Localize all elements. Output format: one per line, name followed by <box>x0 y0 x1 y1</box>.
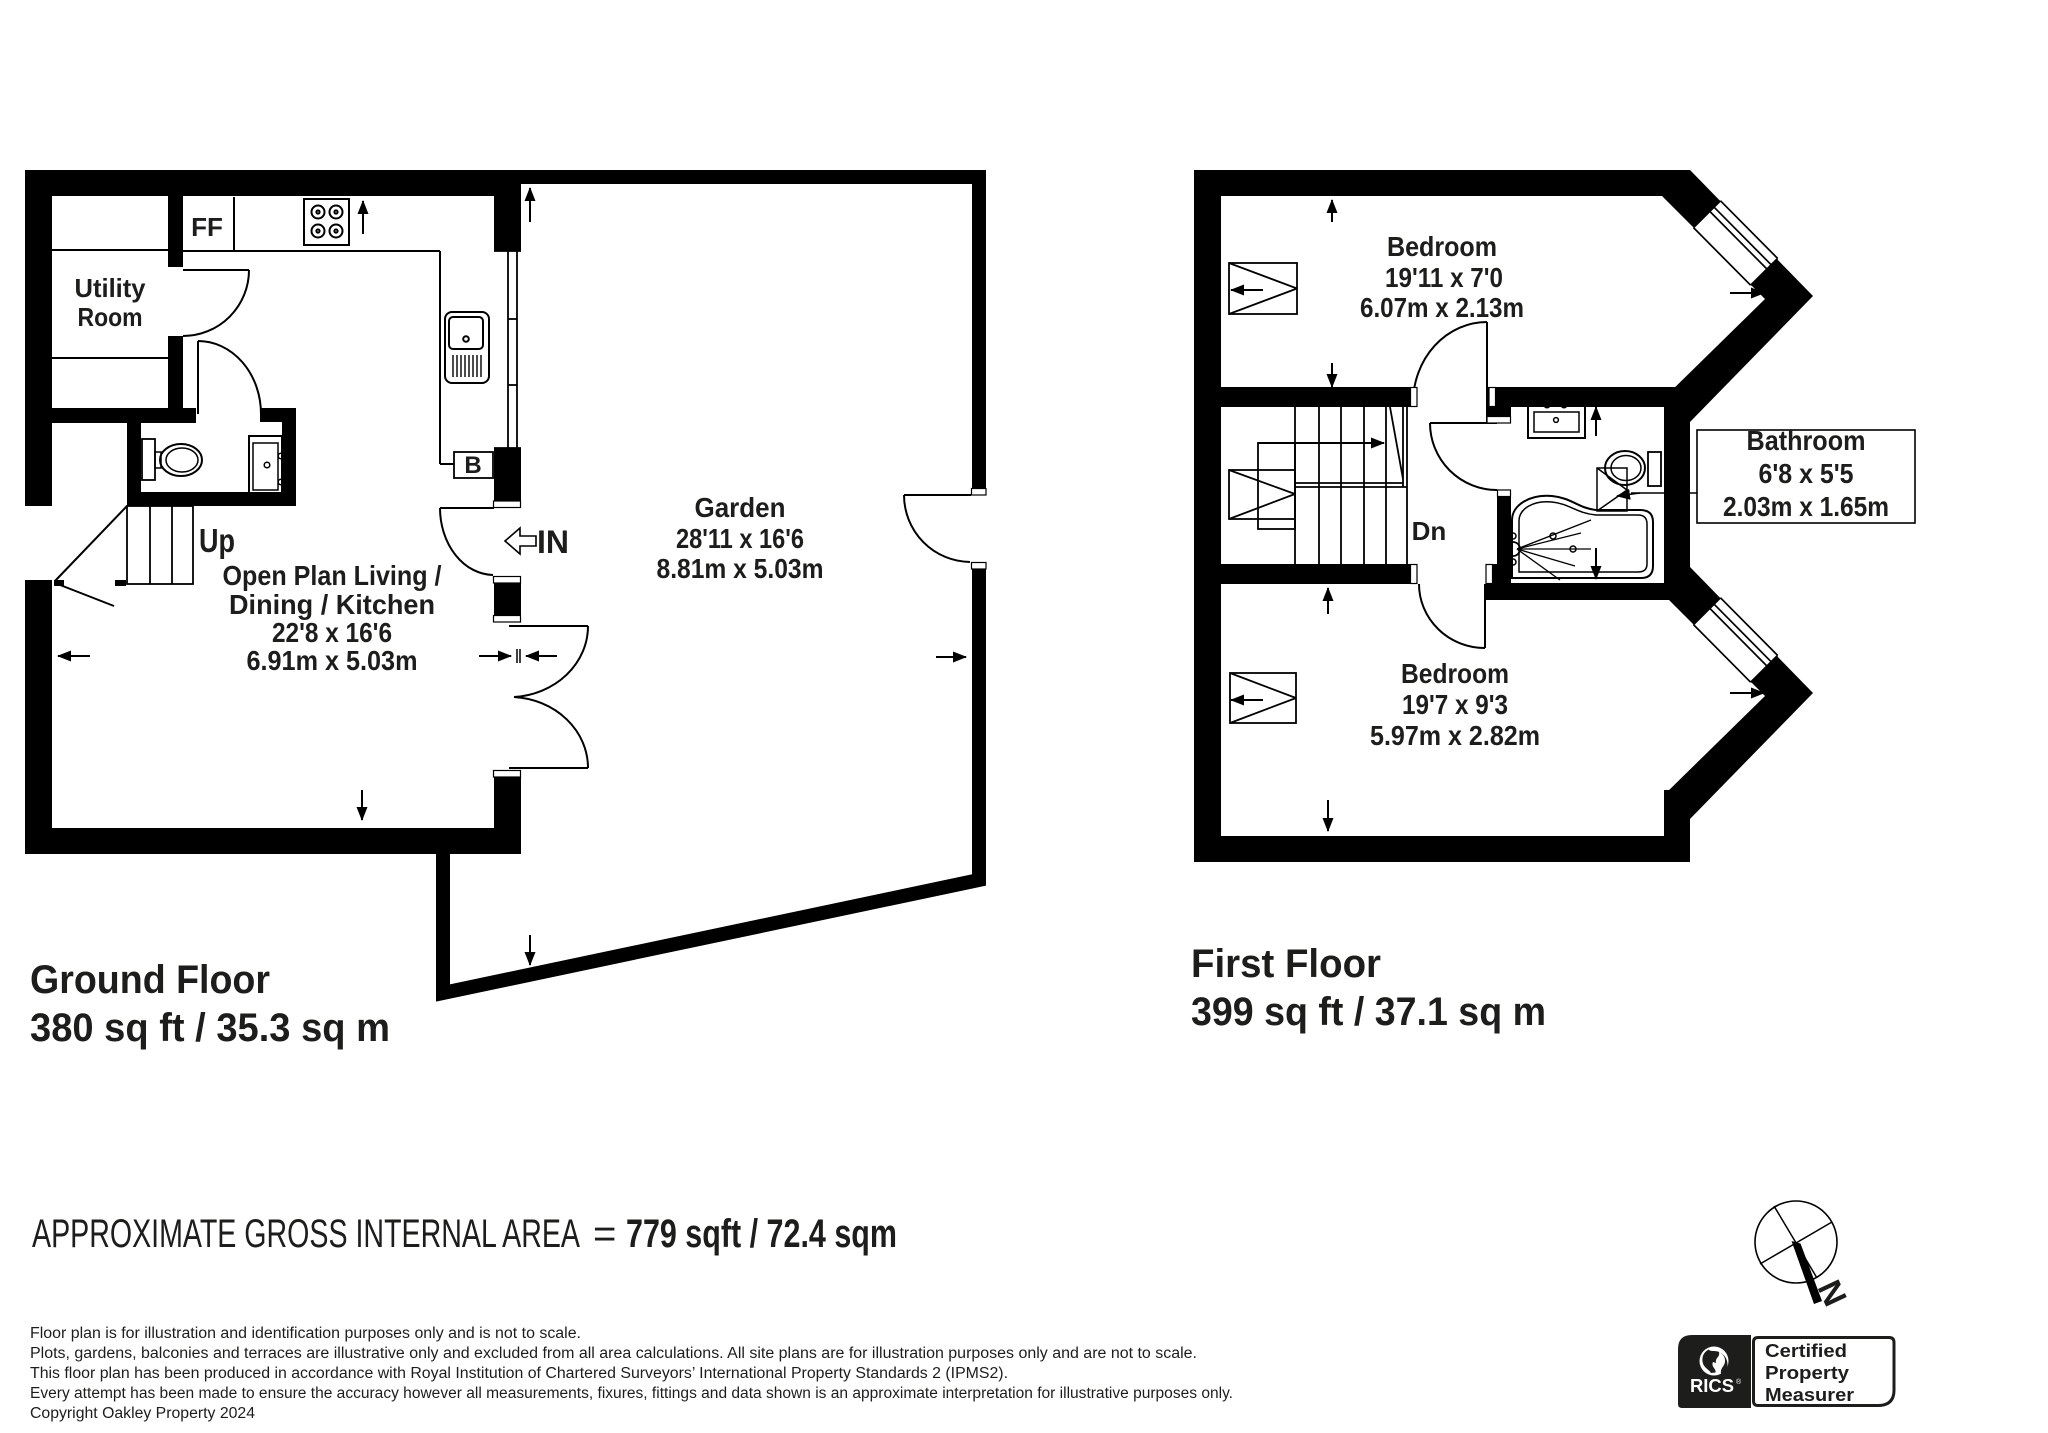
svg-text:B: B <box>464 452 481 479</box>
svg-text:Ground Floor: Ground Floor <box>30 958 270 1002</box>
svg-text:19'7 x 9'3: 19'7 x 9'3 <box>1402 689 1508 720</box>
svg-text:APPROXIMATE GROSS INTERNAL ARE: APPROXIMATE GROSS INTERNAL AREA=779 sqft… <box>32 1212 897 1256</box>
svg-text:6.07m x 2.13m: 6.07m x 2.13m <box>1360 292 1524 323</box>
svg-text:RICS: RICS <box>1690 1376 1734 1396</box>
svg-text:8.81m x 5.03m: 8.81m x 5.03m <box>657 553 824 584</box>
svg-text:28'11 x 16'6: 28'11 x 16'6 <box>676 523 804 554</box>
svg-text:19'11 x 7'0: 19'11 x 7'0 <box>1385 262 1503 293</box>
svg-text:Plots, gardens, balconies and: Plots, gardens, balconies and terraces a… <box>30 1345 1197 1362</box>
svg-text:Utility: Utility <box>75 273 147 303</box>
svg-text:22'8 x 16'6: 22'8 x 16'6 <box>272 617 392 648</box>
svg-text:First Floor: First Floor <box>1191 942 1381 986</box>
svg-text:Garden: Garden <box>695 492 786 523</box>
svg-text:Floor plan is for illustration: Floor plan is for illustration and ident… <box>30 1325 581 1342</box>
svg-text:399 sq ft / 37.1 sq m: 399 sq ft / 37.1 sq m <box>1191 990 1546 1034</box>
svg-text:Copyright Oakley Property 2024: Copyright Oakley Property 2024 <box>30 1405 255 1422</box>
svg-text:®: ® <box>1736 1378 1742 1386</box>
svg-text:Room: Room <box>78 302 143 332</box>
svg-text:5.97m x 2.82m: 5.97m x 2.82m <box>1370 720 1540 751</box>
svg-text:Bedroom: Bedroom <box>1387 231 1497 262</box>
svg-text:6'8 x 5'5: 6'8 x 5'5 <box>1759 458 1854 489</box>
svg-text:2.03m x 1.65m: 2.03m x 1.65m <box>1723 491 1889 522</box>
svg-text:Bathroom: Bathroom <box>1747 425 1866 456</box>
svg-text:Measurer: Measurer <box>1765 1385 1854 1405</box>
svg-text:Dining / Kitchen: Dining / Kitchen <box>229 589 435 620</box>
svg-text:Up: Up <box>199 522 235 559</box>
svg-text:Open Plan Living /: Open Plan Living / <box>223 560 442 591</box>
svg-text:Every attempt has been made to: Every attempt has been made to ensure th… <box>30 1385 1233 1402</box>
svg-text:Bedroom: Bedroom <box>1401 658 1509 689</box>
svg-text:Property: Property <box>1765 1363 1849 1383</box>
svg-text:This floor plan has been produ: This floor plan has been produced in acc… <box>30 1365 1008 1382</box>
svg-text:380 sq ft / 35.3 sq m: 380 sq ft / 35.3 sq m <box>30 1006 390 1050</box>
svg-text:Certified: Certified <box>1765 1341 1847 1361</box>
svg-text:IN: IN <box>537 524 569 560</box>
svg-text:6.91m x 5.03m: 6.91m x 5.03m <box>247 645 418 676</box>
svg-text:FF: FF <box>191 212 223 242</box>
svg-text:Dn: Dn <box>1412 516 1447 546</box>
